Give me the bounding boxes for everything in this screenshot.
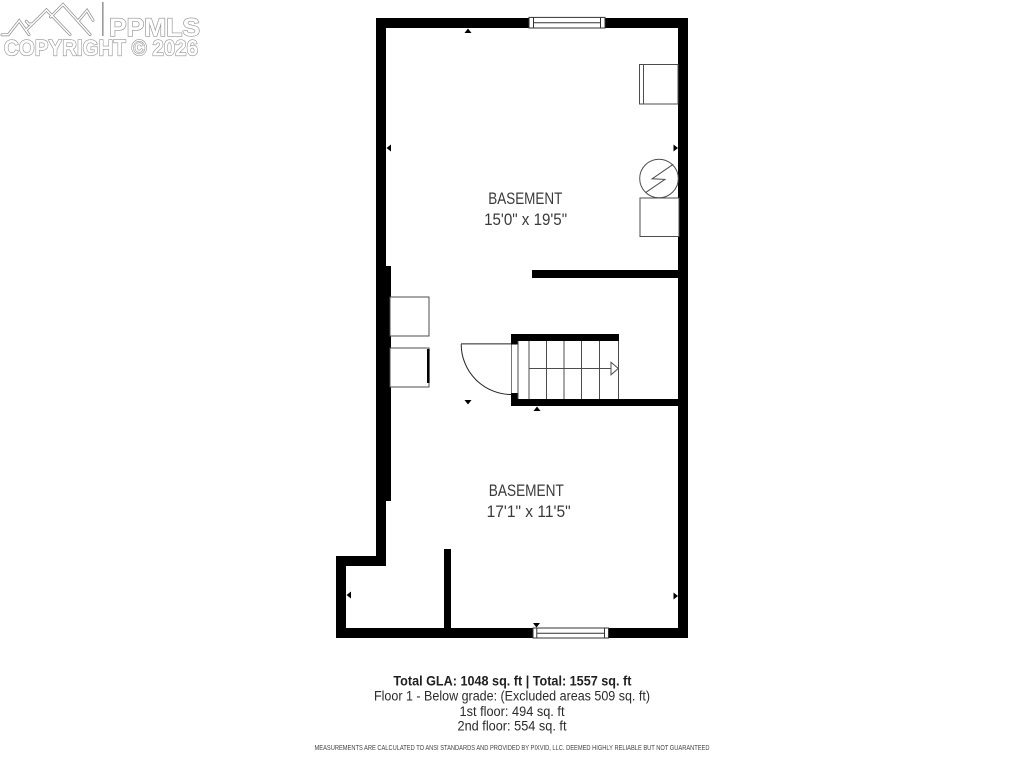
svg-text:15'0" x 19'5": 15'0" x 19'5" (484, 211, 567, 229)
svg-text:BASEMENT: BASEMENT (488, 190, 562, 208)
svg-text:2nd floor: 554 sq. ft: 2nd floor: 554 sq. ft (458, 719, 567, 735)
svg-text:Floor 1 - Below grade: (Exclud: Floor 1 - Below grade: (Excluded areas 5… (374, 689, 650, 705)
svg-text:Total GLA: 1048 sq. ft | Total: Total GLA: 1048 sq. ft | Total: 1557 sq.… (393, 674, 631, 690)
svg-text:17'1" x 11'5": 17'1" x 11'5" (487, 503, 571, 521)
svg-text:COPYRIGHT © 2026: COPYRIGHT © 2026 (4, 35, 198, 60)
svg-text:MEASUREMENTS ARE CALCULATED TO: MEASUREMENTS ARE CALCULATED TO ANSI STAN… (315, 743, 710, 752)
svg-text:BASEMENT: BASEMENT (489, 482, 564, 500)
